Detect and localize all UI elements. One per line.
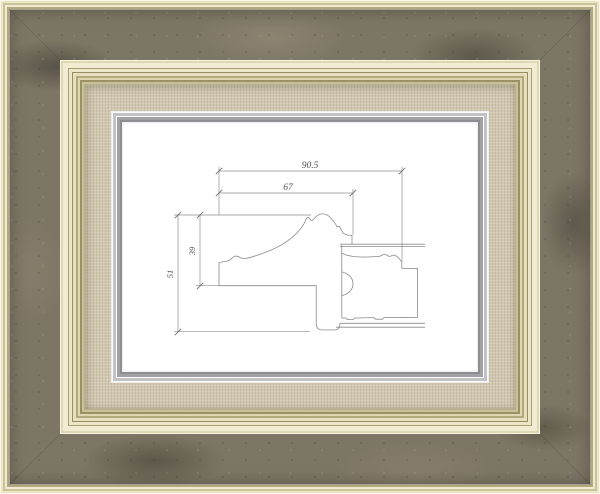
cross-section-drawing: 90.5 67 51 39 [122, 122, 478, 372]
dim-label-total-width: 90.5 [302, 161, 319, 171]
profile-geometry [219, 214, 425, 330]
dim-label-total-height: 51 [165, 270, 175, 279]
dim-label-face-width: 67 [283, 183, 294, 193]
artwork-area: 90.5 67 51 39 [122, 122, 478, 372]
moulding-face-outline [219, 214, 352, 286]
liner-bead-arc [342, 272, 353, 296]
dimension-labels: 90.5 67 51 39 [165, 161, 319, 278]
dim-label-face-height: 39 [187, 246, 197, 256]
frame-product-photo: 90.5 67 51 39 [0, 0, 600, 494]
moulding-rabbet-leg [219, 286, 340, 330]
